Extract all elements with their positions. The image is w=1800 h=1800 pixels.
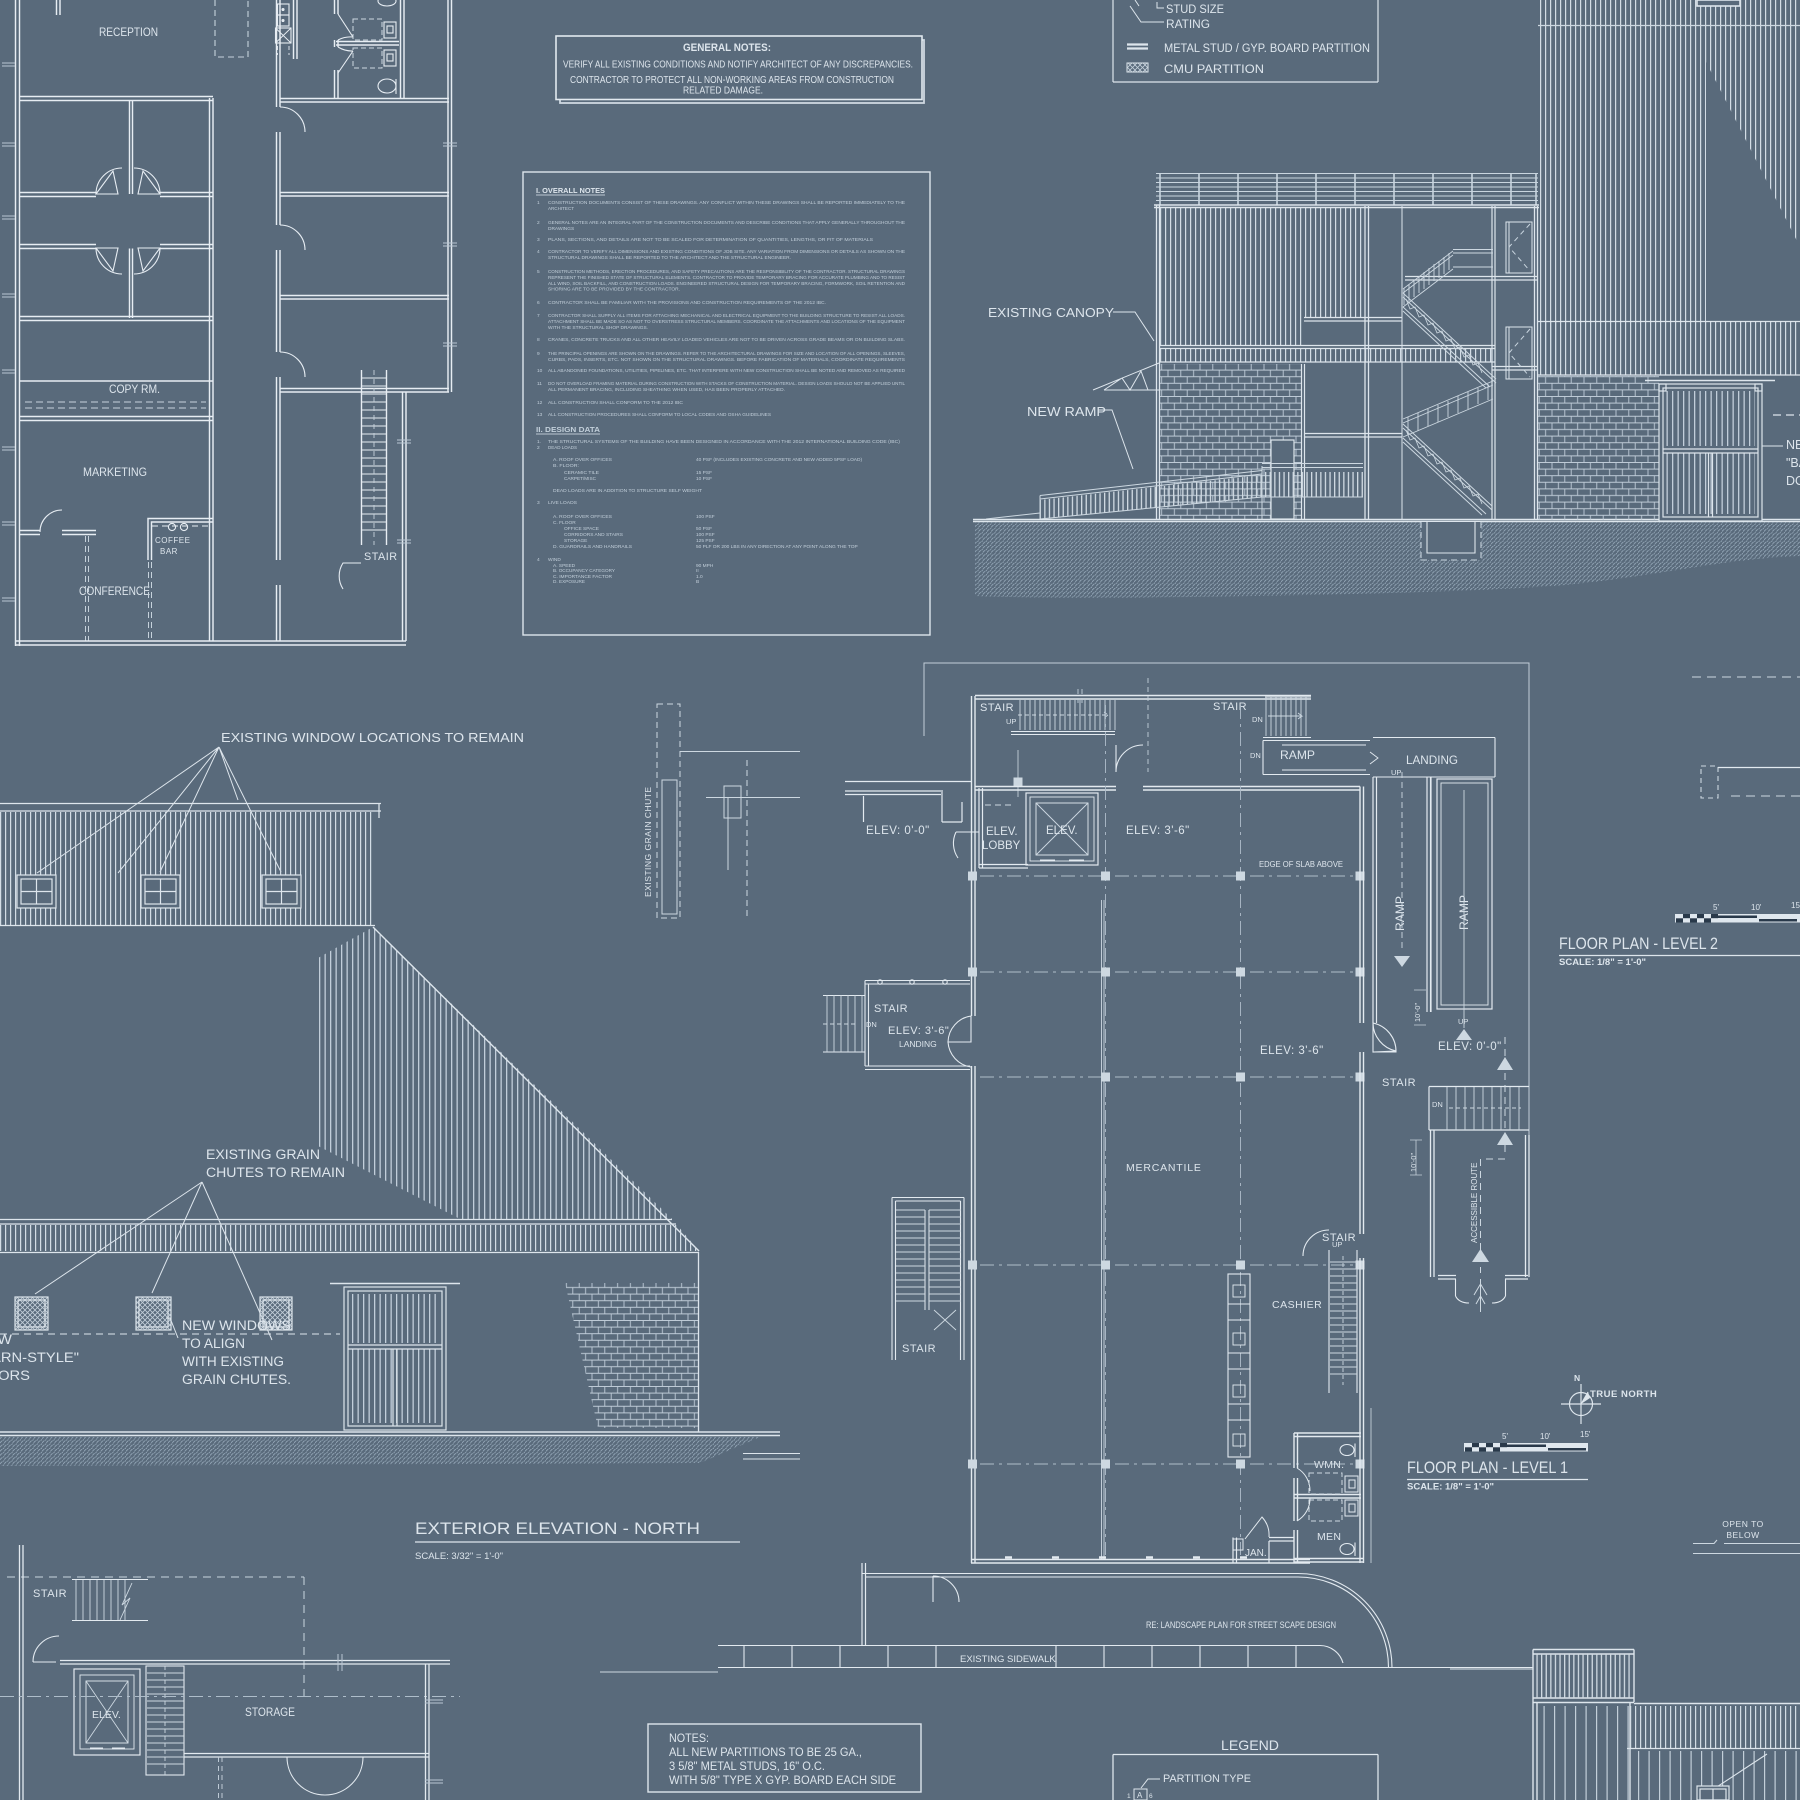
svg-text:DO NOT OVERLOAD FRAMING MATERI: DO NOT OVERLOAD FRAMING MATERIAL DURING … bbox=[548, 381, 905, 387]
svg-text:ARCHITECT: ARCHITECT bbox=[548, 206, 574, 212]
svg-text:BAR: BAR bbox=[160, 547, 178, 556]
svg-text:LANDING: LANDING bbox=[1406, 755, 1458, 767]
svg-text:RAMP: RAMP bbox=[1395, 896, 1407, 931]
svg-text:CHUTES TO REMAIN: CHUTES TO REMAIN bbox=[206, 1165, 345, 1180]
svg-text:10: 10 bbox=[537, 368, 543, 374]
svg-text:50 PLF OR 200 LBS IN ANY DIREC: 50 PLF OR 200 LBS IN ANY DIRECTION AT AN… bbox=[696, 544, 858, 550]
svg-text:50 PSF: 50 PSF bbox=[696, 526, 712, 532]
svg-text:STUD SIZE: STUD SIZE bbox=[1166, 4, 1224, 16]
svg-text:CONTRACTOR TO PROTECT ALL NON-: CONTRACTOR TO PROTECT ALL NON-WORKING AR… bbox=[570, 75, 894, 86]
svg-text:THE PRINCIPAL OPENINGS ARE SHO: THE PRINCIPAL OPENINGS ARE SHOWN ON THE … bbox=[548, 351, 905, 357]
svg-text:TO ALIGN: TO ALIGN bbox=[182, 1336, 245, 1351]
svg-text:STORAGE: STORAGE bbox=[564, 538, 587, 544]
svg-text:VERIFY ALL EXISTING CONDITIONS: VERIFY ALL EXISTING CONDITIONS AND NOTIF… bbox=[563, 60, 913, 71]
svg-text:PARTITION TYPE: PARTITION TYPE bbox=[1163, 1773, 1251, 1785]
svg-text:4: 4 bbox=[537, 249, 540, 255]
svg-text:2: 2 bbox=[537, 445, 540, 451]
svg-text:ALL PERMANENT BRACING, INCLUDI: ALL PERMANENT BRACING, INCLUDING SHEATHI… bbox=[548, 387, 785, 393]
svg-text:GRAIN CHUTES.: GRAIN CHUTES. bbox=[182, 1372, 291, 1387]
svg-text:OPEN TO: OPEN TO bbox=[1722, 1519, 1763, 1529]
svg-text:STORAGE: STORAGE bbox=[245, 1705, 295, 1719]
svg-text:SCALE: 3/32" = 1'-0": SCALE: 3/32" = 1'-0" bbox=[415, 1551, 503, 1562]
svg-text:CURBS, PADS, INSERTS, ETC. NOT: CURBS, PADS, INSERTS, ETC. NOT SHOWN ON … bbox=[548, 357, 905, 363]
svg-text:ACCESSIBLE ROUTE: ACCESSIBLE ROUTE bbox=[1470, 1163, 1479, 1243]
svg-text:6: 6 bbox=[537, 300, 540, 306]
svg-text:THE STRUCTURAL SYSTEMS OF THE: THE STRUCTURAL SYSTEMS OF THE BUILDING H… bbox=[548, 439, 900, 445]
svg-text:1.: 1. bbox=[537, 439, 541, 445]
svg-text:C. FLOOR: C. FLOOR bbox=[553, 520, 576, 526]
svg-text:NEW WINDOWS: NEW WINDOWS bbox=[182, 1318, 291, 1333]
svg-text:RAMP: RAMP bbox=[1280, 750, 1315, 762]
svg-text:COPY RM.: COPY RM. bbox=[109, 384, 160, 396]
svg-text:FLOOR PLAN - LEVEL 2: FLOOR PLAN - LEVEL 2 bbox=[1559, 934, 1718, 953]
svg-text:"BARN-STYLE": "BARN-STYLE" bbox=[0, 1350, 79, 1365]
svg-text:EDGE OF SLAB ABOVE: EDGE OF SLAB ABOVE bbox=[1259, 860, 1343, 869]
svg-text:CMU PARTITION: CMU PARTITION bbox=[1164, 64, 1264, 76]
svg-text:ALL CONSTRUCTION SHALL CONFORM: ALL CONSTRUCTION SHALL CONFORM TO THE 20… bbox=[548, 400, 684, 406]
svg-text:12: 12 bbox=[537, 400, 543, 406]
svg-text:CONSTRUCTION METHODS, ERECTION: CONSTRUCTION METHODS, ERECTION PROCEDURE… bbox=[548, 269, 905, 275]
svg-text:DRAWINGS: DRAWINGS bbox=[548, 226, 574, 232]
svg-text:11: 11 bbox=[537, 381, 542, 387]
svg-text:DN: DN bbox=[1250, 751, 1261, 760]
svg-text:MARKETING: MARKETING bbox=[83, 467, 147, 479]
svg-text:NOTES:: NOTES: bbox=[669, 1733, 709, 1745]
svg-text:ELEV.: ELEV. bbox=[1046, 825, 1078, 837]
svg-text:WITH 5/8" TYPE X GYP. BOARD EA: WITH 5/8" TYPE X GYP. BOARD EACH SIDE bbox=[669, 1775, 896, 1787]
svg-text:CONTRACTOR TO VERIFY ALL DIMEN: CONTRACTOR TO VERIFY ALL DIMENSIONS AND … bbox=[548, 249, 905, 255]
svg-text:CRANES, CONCRETE TRUCKS AND AL: CRANES, CONCRETE TRUCKS AND ALL OTHER HE… bbox=[548, 337, 905, 343]
svg-text:UP: UP bbox=[1458, 1017, 1468, 1026]
svg-text:15': 15' bbox=[1580, 1430, 1591, 1439]
svg-text:DOORS: DOORS bbox=[0, 1368, 30, 1383]
svg-text:3 5/8" METAL STUDS, 16" O.C.: 3 5/8" METAL STUDS, 16" O.C. bbox=[669, 1761, 825, 1773]
svg-text:15': 15' bbox=[1791, 901, 1800, 910]
svg-text:II. DESIGN DATA: II. DESIGN DATA bbox=[536, 427, 600, 434]
svg-text:GENERAL NOTES:: GENERAL NOTES: bbox=[683, 42, 771, 54]
svg-text:10': 10' bbox=[1751, 903, 1762, 912]
svg-text:MEN: MEN bbox=[1317, 1531, 1341, 1543]
svg-text:6: 6 bbox=[1149, 1793, 1153, 1800]
svg-text:SHORING ARE TO BE PROVIDED BY: SHORING ARE TO BE PROVIDED BY THE CONTRA… bbox=[548, 287, 680, 293]
svg-text:I. OVERALL NOTES: I. OVERALL NOTES bbox=[536, 188, 605, 195]
svg-text:5': 5' bbox=[1502, 1432, 1508, 1441]
svg-text:DN: DN bbox=[1252, 715, 1263, 724]
svg-text:NEW RAMP: NEW RAMP bbox=[1027, 405, 1106, 419]
svg-text:CONTRACTOR SHALL BE FAMILIAR W: CONTRACTOR SHALL BE FAMILIAR WITH THE PR… bbox=[548, 300, 826, 306]
svg-text:2: 2 bbox=[537, 220, 540, 226]
svg-text:15 PSF: 15 PSF bbox=[696, 470, 712, 476]
svg-text:RATING: RATING bbox=[1166, 19, 1210, 31]
svg-text:CERAMIC TILE: CERAMIC TILE bbox=[564, 470, 599, 476]
svg-text:UP: UP bbox=[1006, 717, 1016, 726]
svg-text:STAIR: STAIR bbox=[1322, 1232, 1356, 1244]
svg-text:CONSTRUCTION DOCUMENTS CONSIST: CONSTRUCTION DOCUMENTS CONSIST OF THESE … bbox=[548, 200, 905, 206]
svg-text:WMN.: WMN. bbox=[1314, 1459, 1344, 1471]
svg-text:D. GUARDRAILS AND HANDRAILS: D. GUARDRAILS AND HANDRAILS bbox=[553, 544, 632, 550]
svg-text:N: N bbox=[1574, 1373, 1580, 1383]
svg-text:LOBBY: LOBBY bbox=[982, 840, 1021, 852]
svg-text:STAIR: STAIR bbox=[364, 551, 398, 563]
svg-text:ELEV.: ELEV. bbox=[986, 826, 1018, 838]
svg-text:CARPET/MISC: CARPET/MISC bbox=[564, 476, 597, 482]
svg-text:EXISTING WINDOW LOCATIONS TO R: EXISTING WINDOW LOCATIONS TO REMAIN bbox=[221, 730, 524, 745]
svg-text:ELEV: 0'-0": ELEV: 0'-0" bbox=[866, 825, 930, 837]
svg-text:OFFICE SPACE: OFFICE SPACE bbox=[564, 526, 599, 532]
svg-text:ELEV: 3'-6": ELEV: 3'-6" bbox=[1126, 825, 1190, 837]
svg-text:STAIR: STAIR bbox=[1213, 701, 1247, 713]
svg-text:ALL CONSTRUCTION PROCEDURES SH: ALL CONSTRUCTION PROCEDURES SHALL CONFOR… bbox=[548, 412, 771, 418]
svg-text:1: 1 bbox=[537, 200, 540, 206]
svg-text:90 MPH: 90 MPH bbox=[696, 563, 714, 569]
svg-text:EXISTING SIDEWALK: EXISTING SIDEWALK bbox=[960, 1654, 1056, 1665]
svg-text:5: 5 bbox=[537, 269, 540, 275]
svg-text:ALL ABANDONED FOUNDATIONS, UTI: ALL ABANDONED FOUNDATIONS, UTILITIES, PI… bbox=[548, 368, 906, 374]
svg-text:TRUE NORTH: TRUE NORTH bbox=[1590, 1389, 1657, 1400]
svg-text:B. OCCUPANCY CATEGORY: B. OCCUPANCY CATEGORY bbox=[553, 568, 616, 574]
svg-text:A. ROOF OVER OFFICES: A. ROOF OVER OFFICES bbox=[553, 514, 612, 520]
svg-text:REPRESENT THE FINISHED STATE O: REPRESENT THE FINISHED STATE OF STRUCTUR… bbox=[548, 275, 905, 281]
svg-text:CONFERENCE: CONFERENCE bbox=[79, 586, 150, 598]
svg-text:NEW: NEW bbox=[0, 1332, 12, 1347]
svg-text:10'-0": 10'-0" bbox=[1413, 1003, 1422, 1022]
svg-text:10 PSF: 10 PSF bbox=[696, 476, 712, 482]
svg-text:WITH EXISTING: WITH EXISTING bbox=[182, 1354, 284, 1369]
svg-text:A: A bbox=[1137, 1791, 1143, 1800]
svg-text:STRUCTURAL DRAWINGS SHALL BE R: STRUCTURAL DRAWINGS SHALL BE REPORTED TO… bbox=[548, 255, 791, 261]
svg-text:RELATED DAMAGE.: RELATED DAMAGE. bbox=[683, 86, 763, 97]
svg-text:100 PSF: 100 PSF bbox=[696, 514, 715, 520]
svg-text:ELEV: 3'-6": ELEV: 3'-6" bbox=[1260, 1045, 1324, 1057]
svg-text:STAIR: STAIR bbox=[902, 1343, 936, 1355]
svg-text:A. ROOF OVER OFFICES: A. ROOF OVER OFFICES bbox=[553, 457, 612, 463]
svg-text:LEGEND: LEGEND bbox=[1221, 1737, 1279, 1753]
svg-text:COFFEE: COFFEE bbox=[155, 536, 190, 545]
svg-text:EXISTING GRAIN: EXISTING GRAIN bbox=[206, 1147, 320, 1162]
svg-text:3: 3 bbox=[537, 237, 540, 243]
svg-text:SCALE: 1/8" = 1'-0": SCALE: 1/8" = 1'-0" bbox=[1407, 1482, 1494, 1493]
svg-text:10': 10' bbox=[1540, 1432, 1551, 1441]
svg-text:ALL WIND, SOIL BACKFILL, AND C: ALL WIND, SOIL BACKFILL, AND CONSTRUCTIO… bbox=[548, 281, 906, 287]
svg-text:STAIR: STAIR bbox=[980, 702, 1014, 714]
svg-text:B. FLOOR:: B. FLOOR: bbox=[553, 463, 579, 469]
svg-text:40 PSF (INCLUDES EXISTING CONC: 40 PSF (INCLUDES EXISTING CONCRETE AND N… bbox=[696, 457, 862, 463]
svg-text:MERCANTILE: MERCANTILE bbox=[1126, 1162, 1202, 1174]
svg-text:8: 8 bbox=[537, 337, 540, 343]
svg-text:ELEV.: ELEV. bbox=[92, 1709, 121, 1721]
svg-text:B: B bbox=[696, 579, 699, 585]
svg-text:JAN.: JAN. bbox=[1245, 1548, 1267, 1559]
svg-text:5': 5' bbox=[1713, 903, 1719, 912]
svg-text:LIVE LOADS: LIVE LOADS bbox=[548, 500, 577, 506]
svg-text:10'-0": 10'-0" bbox=[1409, 1153, 1418, 1172]
svg-text:EXISTING GRAIN CHUTE: EXISTING GRAIN CHUTE bbox=[643, 786, 653, 897]
svg-text:BELOW: BELOW bbox=[1726, 1530, 1759, 1540]
svg-text:WIND: WIND bbox=[548, 557, 561, 563]
svg-text:ALL NEW PARTITIONS TO BE 25 GA: ALL NEW PARTITIONS TO BE 25 GA., bbox=[669, 1747, 862, 1759]
svg-text:ATTACHMENT SHALL BE MADE SO AS: ATTACHMENT SHALL BE MADE SO AS NOT TO OV… bbox=[548, 319, 905, 325]
svg-text:FLOOR PLAN - LEVEL 1: FLOOR PLAN - LEVEL 1 bbox=[1407, 1458, 1568, 1477]
svg-text:CORRIDORS AND STAIRS: CORRIDORS AND STAIRS bbox=[564, 532, 623, 538]
svg-text:II: II bbox=[696, 568, 699, 574]
svg-text:3: 3 bbox=[537, 500, 540, 506]
svg-text:STAIR: STAIR bbox=[874, 1003, 908, 1015]
svg-text:GENERAL NOTES ARE AN INTEGRAL: GENERAL NOTES ARE AN INTEGRAL PART OF TH… bbox=[548, 220, 905, 226]
svg-text:UP: UP bbox=[1391, 768, 1401, 777]
svg-text:ELEV: 0'-0": ELEV: 0'-0" bbox=[1438, 1041, 1502, 1053]
svg-text:NEW: NEW bbox=[1786, 438, 1800, 452]
svg-text:EXISTING CANOPY: EXISTING CANOPY bbox=[988, 306, 1115, 320]
svg-text:4: 4 bbox=[537, 557, 540, 563]
svg-text:SCALE: 1/8" = 1'-0": SCALE: 1/8" = 1'-0" bbox=[1559, 957, 1646, 968]
svg-text:RE: LANDSCAPE PLAN FOR STREET: RE: LANDSCAPE PLAN FOR STREET SCAPE DESI… bbox=[1146, 1620, 1336, 1631]
svg-text:STAIR: STAIR bbox=[1382, 1077, 1416, 1089]
svg-text:DEAD LOADS ARE IN ADDITION TO: DEAD LOADS ARE IN ADDITION TO STRUCTURE … bbox=[553, 488, 702, 494]
svg-text:LANDING: LANDING bbox=[899, 1039, 937, 1049]
svg-text:13: 13 bbox=[537, 412, 543, 418]
svg-text:RAMP: RAMP bbox=[1459, 895, 1471, 930]
svg-text:DEAD LOADS: DEAD LOADS bbox=[548, 445, 577, 451]
svg-text:CONTRACTOR SHALL SUPPLY ALL IT: CONTRACTOR SHALL SUPPLY ALL ITEMS FOR AT… bbox=[548, 313, 905, 319]
svg-text:STAIR: STAIR bbox=[33, 1588, 67, 1600]
svg-text:EXTERIOR ELEVATION - NORTH: EXTERIOR ELEVATION - NORTH bbox=[415, 1520, 700, 1538]
svg-text:9: 9 bbox=[537, 351, 540, 357]
svg-text:7: 7 bbox=[537, 313, 540, 319]
svg-text:METAL STUD / GYP. BOARD PARTIT: METAL STUD / GYP. BOARD PARTITION bbox=[1164, 43, 1370, 55]
svg-text:1: 1 bbox=[1127, 1793, 1131, 1800]
svg-text:WITH THE STRUCTURAL SHOP DRAWI: WITH THE STRUCTURAL SHOP DRAWINGS. bbox=[548, 325, 648, 331]
svg-text:DN: DN bbox=[866, 1020, 877, 1029]
svg-text:ELEV: 3'-6": ELEV: 3'-6" bbox=[888, 1025, 949, 1037]
svg-text:D. EXPOSURE: D. EXPOSURE bbox=[553, 579, 585, 585]
svg-text:DOOR: DOOR bbox=[1786, 474, 1800, 488]
svg-text:PLANS, SECTIONS, AND DETAILS A: PLANS, SECTIONS, AND DETAILS ARE NOT TO … bbox=[548, 237, 873, 243]
svg-text:"BARN-: "BARN- bbox=[1786, 456, 1800, 470]
svg-text:DN: DN bbox=[1432, 1100, 1443, 1109]
svg-text:RECEPTION: RECEPTION bbox=[99, 27, 158, 39]
svg-text:100 PSF: 100 PSF bbox=[696, 532, 715, 538]
svg-text:125 PSF: 125 PSF bbox=[696, 538, 715, 544]
svg-text:CASHIER: CASHIER bbox=[1272, 1299, 1322, 1311]
